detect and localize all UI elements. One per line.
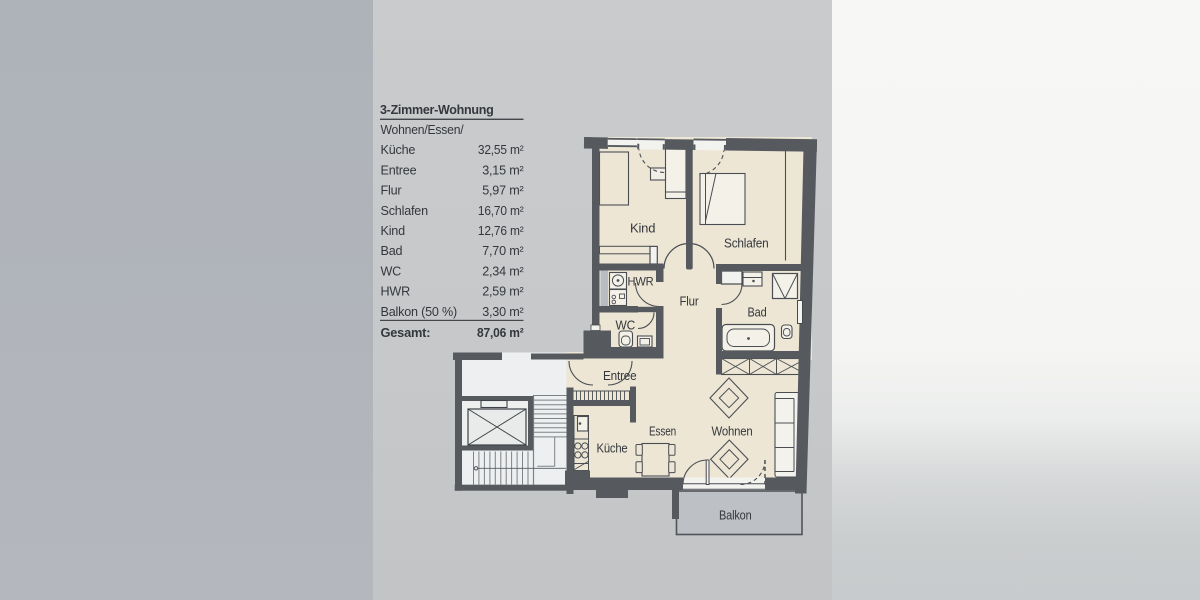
svg-text:Küche: Küche <box>381 143 416 157</box>
svg-text:3,15 m²: 3,15 m² <box>482 163 523 177</box>
svg-text:2,59 m²: 2,59 m² <box>482 285 523 299</box>
svg-text:Flur: Flur <box>680 294 700 309</box>
svg-text:Schlafen: Schlafen <box>724 236 769 251</box>
svg-text:HWR: HWR <box>628 275 654 289</box>
svg-text:Kind: Kind <box>630 221 655 236</box>
svg-text:5,97 m²: 5,97 m² <box>482 184 523 198</box>
svg-text:Balkon: Balkon <box>719 508 752 523</box>
svg-text:3-Zimmer-Wohnung: 3-Zimmer-Wohnung <box>380 102 494 117</box>
svg-text:Kind: Kind <box>381 224 406 238</box>
svg-text:Essen: Essen <box>649 424 676 439</box>
svg-text:87,06 m²: 87,06 m² <box>477 325 524 340</box>
svg-text:Entree: Entree <box>603 368 637 383</box>
svg-text:Schlafen: Schlafen <box>381 204 429 218</box>
svg-text:HWR: HWR <box>381 285 411 299</box>
svg-text:16,70 m²: 16,70 m² <box>478 204 524 218</box>
svg-text:WC: WC <box>381 264 402 278</box>
svg-text:2,34 m²: 2,34 m² <box>482 264 523 278</box>
svg-text:Wohnen: Wohnen <box>712 424 753 439</box>
svg-text:Gesamt:: Gesamt: <box>381 325 431 340</box>
svg-text:3,30 m²: 3,30 m² <box>482 305 523 319</box>
svg-text:12,76 m²: 12,76 m² <box>478 224 524 238</box>
svg-text:Bad: Bad <box>748 305 767 320</box>
svg-text:32,55 m²: 32,55 m² <box>478 143 524 157</box>
svg-text:Wohnen/Essen/: Wohnen/Essen/ <box>381 123 465 137</box>
svg-text:Entree: Entree <box>381 163 417 177</box>
svg-text:WC: WC <box>616 319 636 333</box>
svg-text:7,70 m²: 7,70 m² <box>482 244 523 258</box>
svg-text:Balkon (50 %): Balkon (50 %) <box>381 305 458 319</box>
svg-text:Küche: Küche <box>597 441 628 456</box>
svg-text:Bad: Bad <box>381 244 403 258</box>
svg-text:Flur: Flur <box>381 184 402 198</box>
